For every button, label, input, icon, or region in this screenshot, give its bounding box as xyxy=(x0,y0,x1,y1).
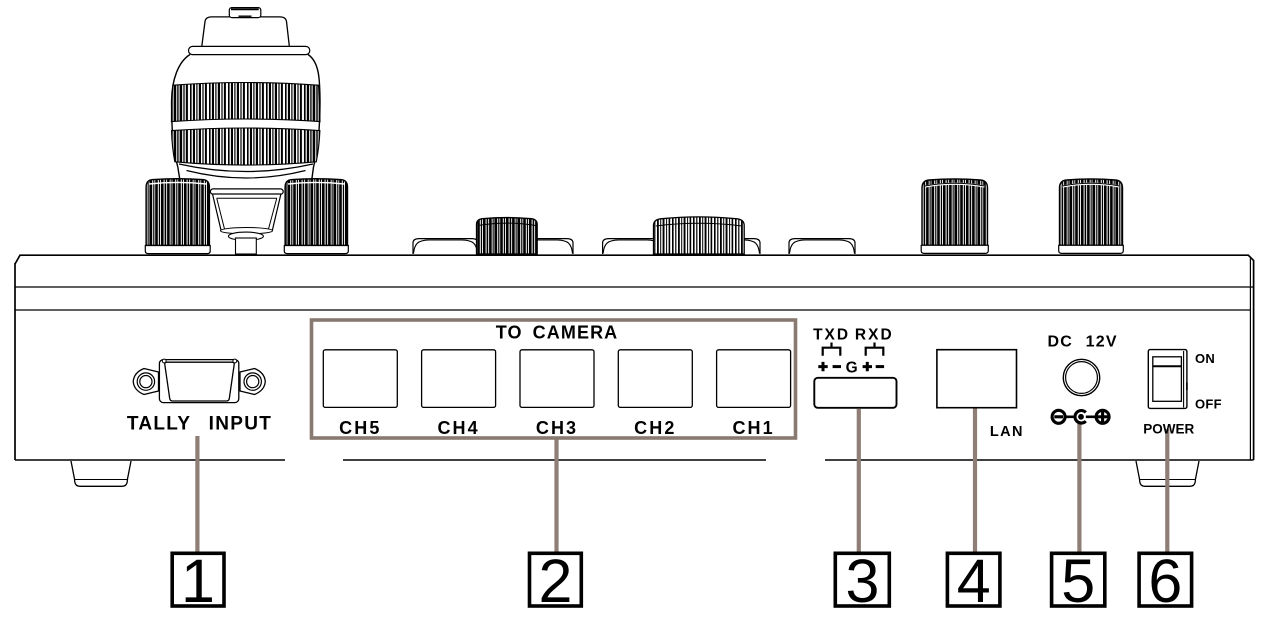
svg-text:4: 4 xyxy=(957,547,991,615)
svg-text:DC 12V: DC 12V xyxy=(1047,333,1117,350)
svg-text:CH4: CH4 xyxy=(437,418,479,438)
svg-text:CH5: CH5 xyxy=(339,418,381,438)
svg-text:G: G xyxy=(846,359,858,376)
svg-text:OFF: OFF xyxy=(1195,397,1222,412)
svg-text:TXD: TXD xyxy=(813,326,850,343)
svg-text:1: 1 xyxy=(181,547,215,615)
svg-text:5: 5 xyxy=(1061,547,1095,615)
svg-text:6: 6 xyxy=(1148,547,1182,615)
svg-text:CH2: CH2 xyxy=(634,418,676,438)
svg-text:POWER: POWER xyxy=(1143,422,1194,437)
svg-text:LAN: LAN xyxy=(990,424,1024,440)
svg-text:CH3: CH3 xyxy=(536,418,578,438)
svg-text:3: 3 xyxy=(846,547,880,615)
svg-text:TALLY INPUT: TALLY INPUT xyxy=(127,414,272,435)
svg-text:TO CAMERA: TO CAMERA xyxy=(496,322,619,342)
svg-text:ON: ON xyxy=(1195,351,1215,366)
svg-text:CH1: CH1 xyxy=(732,418,774,438)
svg-text:RXD: RXD xyxy=(855,326,894,343)
svg-text:2: 2 xyxy=(539,547,573,615)
